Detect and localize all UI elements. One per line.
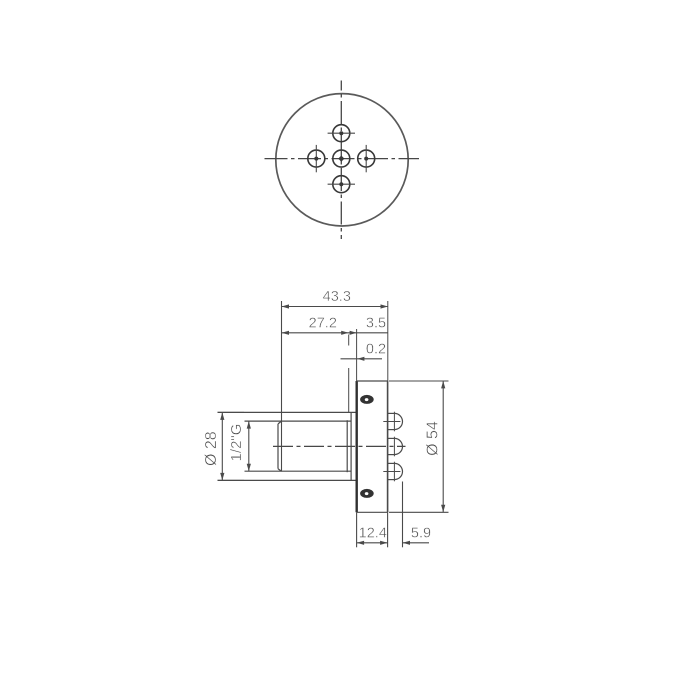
- svg-text:27.2: 27.2: [309, 315, 337, 331]
- svg-text:0.2: 0.2: [366, 341, 386, 357]
- svg-text:3.5: 3.5: [366, 315, 386, 331]
- svg-text:43.3: 43.3: [323, 289, 351, 305]
- svg-text:12.4: 12.4: [359, 526, 387, 542]
- svg-text:5.9: 5.9: [411, 526, 431, 542]
- svg-text:1/2"G: 1/2"G: [228, 424, 245, 462]
- svg-text:Ø 54: Ø 54: [425, 421, 442, 456]
- svg-text:Ø 28: Ø 28: [203, 431, 220, 466]
